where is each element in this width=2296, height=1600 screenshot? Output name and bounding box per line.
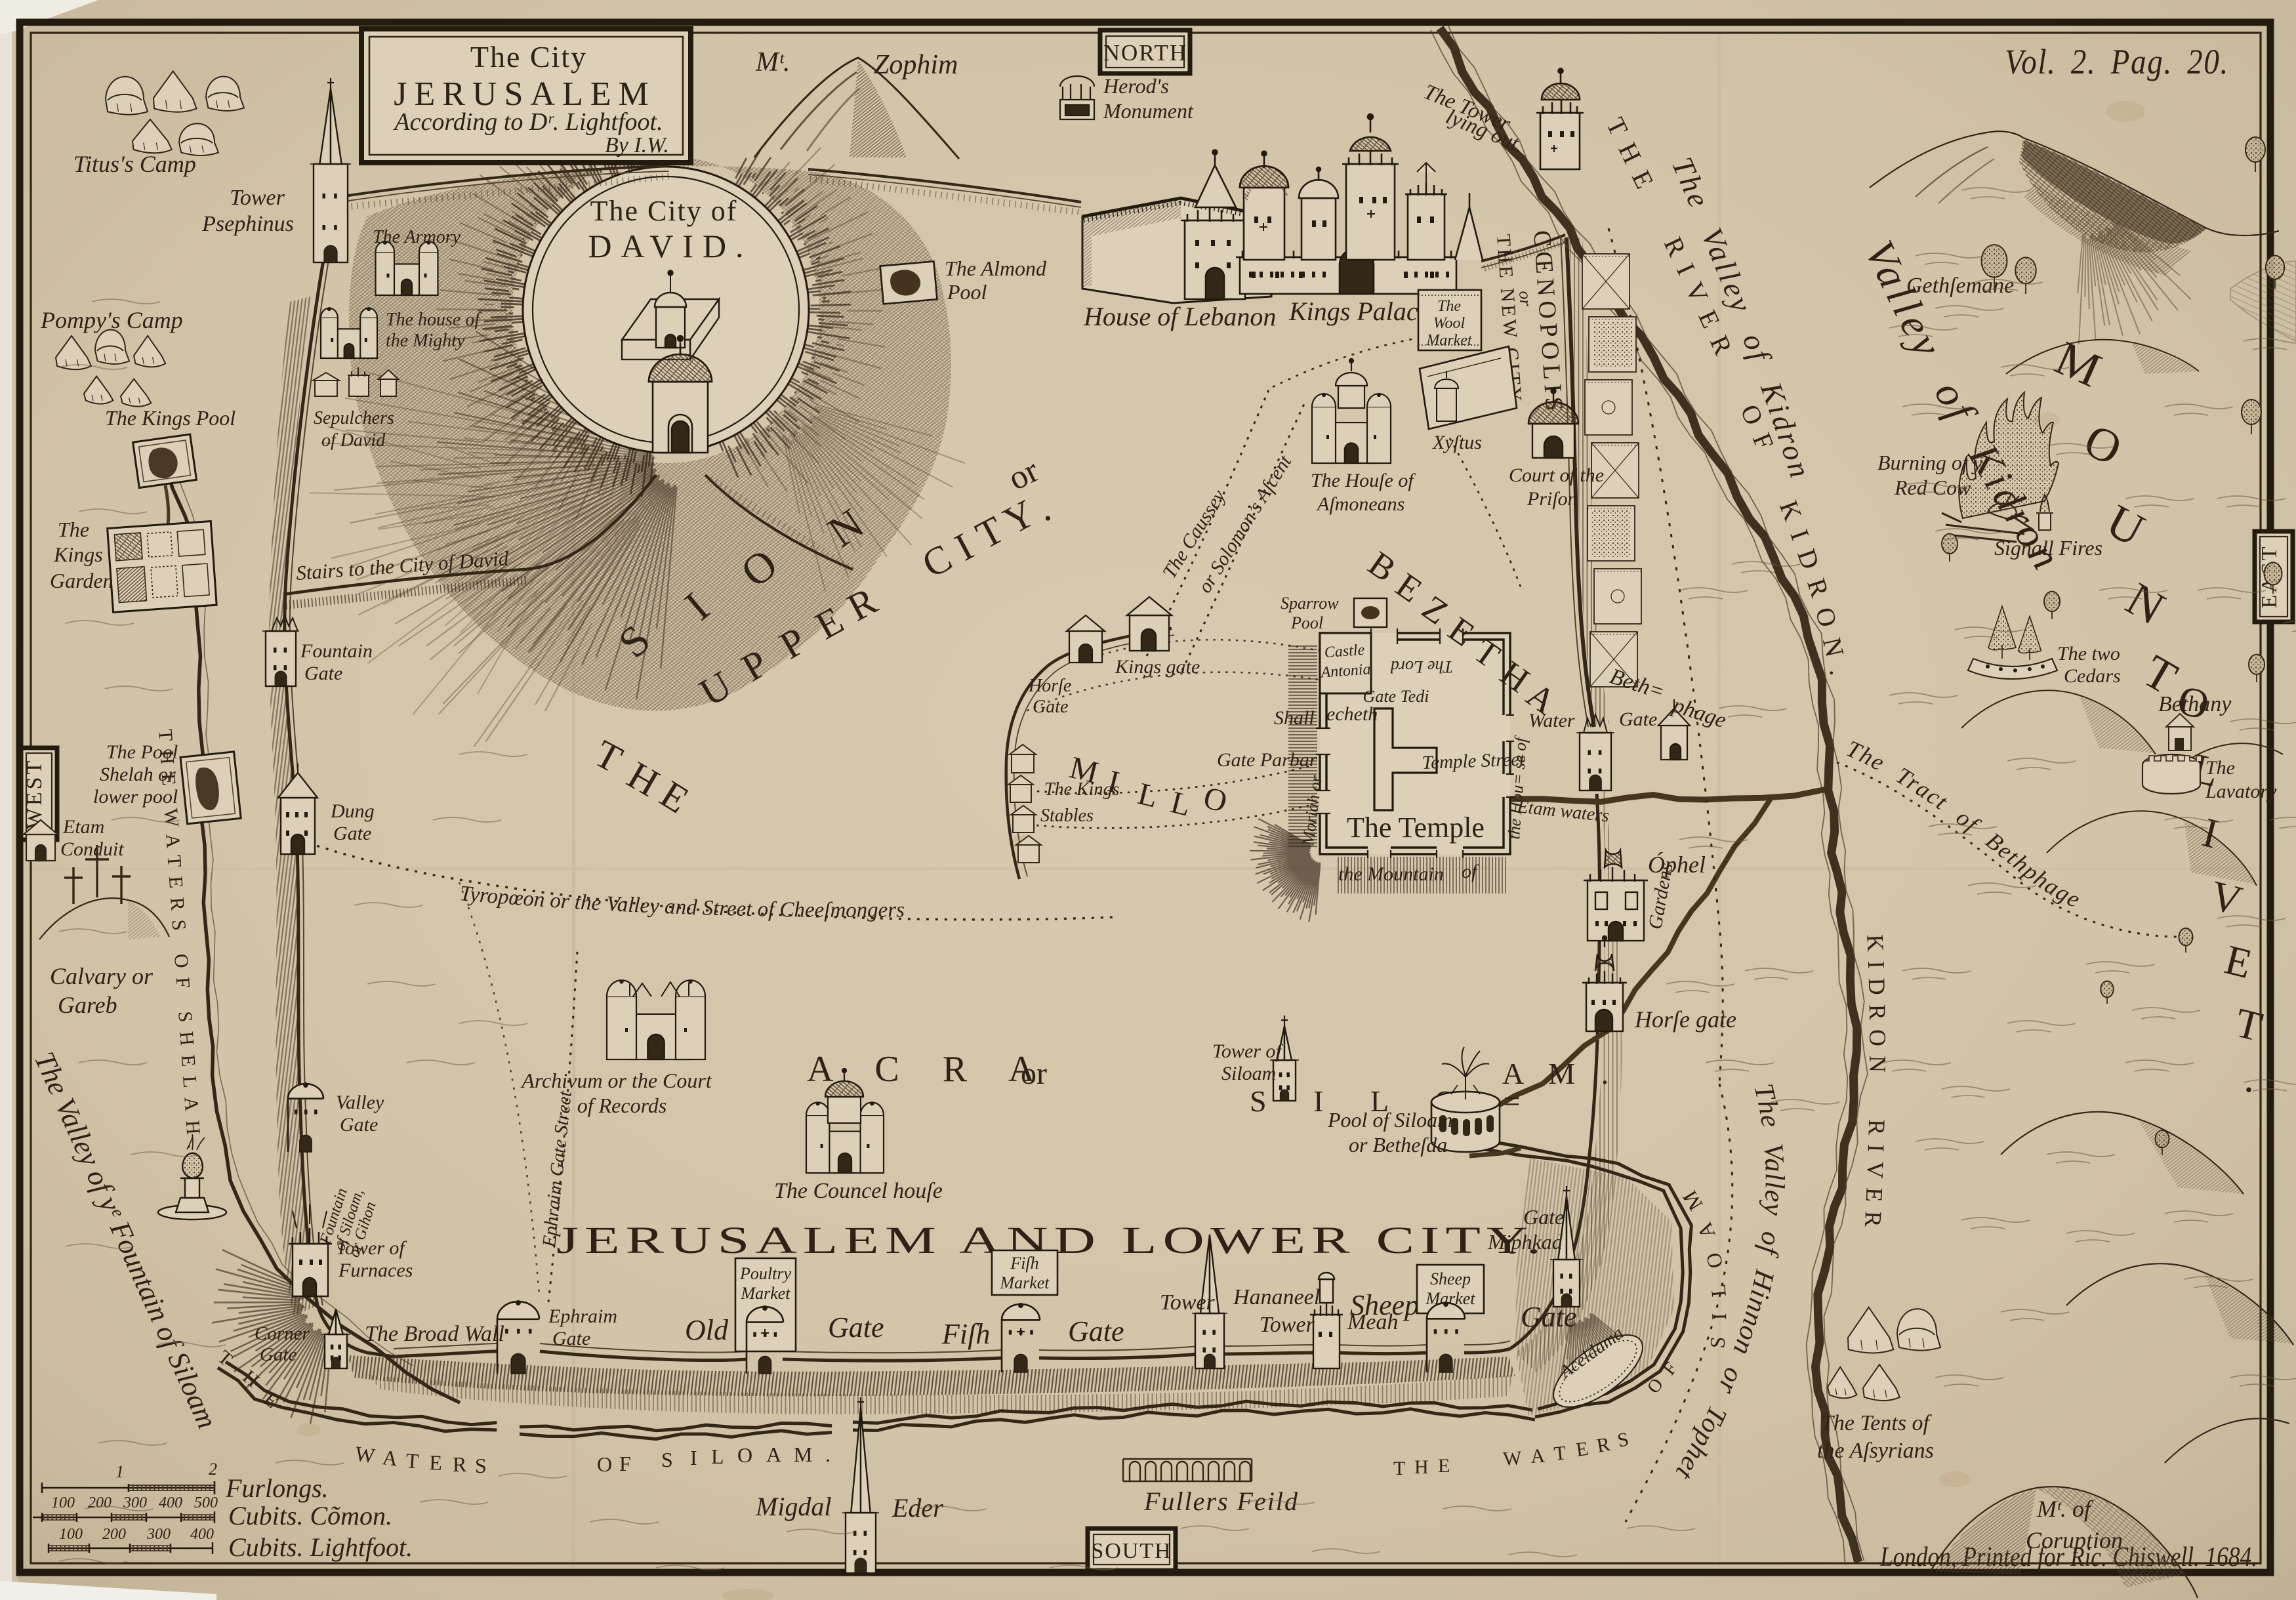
svg-text:Conduit: Conduit — [60, 838, 124, 860]
svg-text:Aſmoneans: Aſmoneans — [1316, 493, 1404, 515]
svg-text:Old: Old — [685, 1314, 729, 1346]
svg-text:the Aſsyrians: the Aſsyrians — [1817, 1439, 1934, 1463]
svg-text:Monument: Monument — [1103, 99, 1194, 123]
svg-text:Horſe gate: Horſe gate — [1634, 1006, 1736, 1033]
svg-text:Cedars: Cedars — [2064, 665, 2121, 687]
svg-text:Horſe: Horſe — [1028, 676, 1071, 696]
svg-text:L: L — [711, 1445, 724, 1468]
svg-text:of David: of David — [321, 430, 386, 451]
svg-text:Miphkad: Miphkad — [1487, 1230, 1563, 1254]
svg-text:Ephraim: Ephraim — [548, 1305, 617, 1327]
svg-text:Gate: Gate — [552, 1328, 590, 1349]
svg-text:Gate: Gate — [333, 823, 371, 844]
svg-text:Gate: Gate — [828, 1311, 884, 1344]
svg-text:Zophim: Zophim — [874, 50, 958, 80]
svg-text:T: T — [1393, 1458, 1405, 1479]
svg-text:House of Lebanon: House of Lebanon — [1083, 302, 1276, 331]
svg-text:400: 400 — [190, 1526, 214, 1543]
svg-text:100: 100 — [51, 1494, 75, 1511]
svg-text:The Lord: The Lord — [1390, 657, 1453, 676]
svg-text:T: T — [1553, 1442, 1567, 1465]
svg-text:300: 300 — [146, 1526, 171, 1543]
svg-text:The: The — [1437, 298, 1461, 315]
svg-text:A: A — [1530, 1445, 1546, 1467]
svg-text:Sheep: Sheep — [1350, 1289, 1419, 1321]
svg-text:500: 500 — [194, 1494, 218, 1511]
svg-text:The Houſe of: The Houſe of — [1311, 470, 1416, 491]
svg-text:Shall: Shall — [1274, 707, 1315, 729]
svg-text:Furnaces: Furnaces — [338, 1260, 413, 1281]
svg-text:Cubits. Lightfoot.: Cubits. Lightfoot. — [228, 1532, 413, 1562]
svg-text:Antonia: Antonia — [1319, 661, 1372, 681]
svg-text:Vol. 2. Pag. 20.: Vol. 2. Pag. 20. — [2005, 42, 2229, 81]
svg-text:Óphel: Óphel — [1648, 851, 1706, 878]
svg-text:W: W — [1502, 1447, 1523, 1470]
svg-text:The Councel houſe: The Councel houſe — [774, 1179, 943, 1203]
svg-text:Gareb: Gareb — [58, 992, 117, 1018]
svg-text:Hananeel: Hananeel — [1233, 1285, 1320, 1309]
svg-text:Pool: Pool — [1290, 613, 1323, 632]
svg-text:R: R — [453, 1452, 467, 1476]
svg-text:The: The — [58, 518, 89, 541]
svg-text:O: O — [597, 1452, 612, 1476]
svg-text:Pool of Siloam: Pool of Siloam — [1327, 1108, 1452, 1132]
svg-text:Psephinus: Psephinus — [201, 212, 294, 236]
svg-text:.: . — [825, 1443, 830, 1466]
svg-text:or Betheſda: or Betheſda — [1349, 1133, 1447, 1157]
svg-text:Cubits. Cõmon.: Cubits. Cõmon. — [228, 1501, 392, 1530]
svg-text:of Records: of Records — [577, 1094, 667, 1117]
svg-text:Gate: Gate — [1619, 708, 1657, 730]
svg-text:Tower: Tower — [230, 186, 285, 210]
svg-text:Kings Palace: Kings Palace — [1288, 297, 1429, 326]
svg-text:The Temple: The Temple — [1347, 811, 1485, 844]
svg-text:Court of the: Court of the — [1509, 464, 1604, 486]
svg-text:Sepulchers: Sepulchers — [314, 408, 394, 428]
svg-text:Bethany: Bethany — [2158, 692, 2232, 716]
svg-text:Fountain: Fountain — [300, 640, 373, 662]
svg-text:Wool: Wool — [1433, 315, 1466, 332]
svg-text:Tower: Tower — [1260, 1313, 1315, 1337]
svg-text:Mᵗ. of: Mᵗ. of — [2036, 1496, 2094, 1522]
svg-text:Temple Street: Temple Street — [1422, 749, 1525, 773]
svg-text:Coruption: Coruption — [2026, 1527, 2123, 1553]
svg-text:the Mighty: the Mighty — [386, 331, 465, 351]
svg-text:By I.W.: By I.W. — [605, 133, 669, 157]
svg-text:E: E — [429, 1450, 443, 1475]
svg-text:A: A — [766, 1443, 781, 1466]
svg-text:The Kings Pool: The Kings Pool — [105, 406, 236, 430]
svg-text:Pompy's Camp: Pompy's Camp — [40, 307, 183, 333]
svg-text:Xyſtus: Xyſtus — [1432, 432, 1482, 453]
svg-text:or: or — [1021, 1056, 1047, 1091]
svg-text:2: 2 — [209, 1460, 217, 1479]
svg-text:O: O — [737, 1443, 752, 1467]
svg-text:Pool: Pool — [947, 280, 987, 304]
svg-text:200: 200 — [102, 1526, 126, 1543]
svg-text:Fiſh: Fiſh — [1010, 1254, 1038, 1273]
svg-text:Sheep: Sheep — [1430, 1269, 1471, 1288]
svg-text:S: S — [661, 1448, 673, 1471]
svg-text:The house of: The house of — [386, 310, 482, 330]
svg-text:Gate: Gate — [1033, 697, 1068, 717]
svg-text:The Broad Wall: The Broad Wall — [365, 1322, 504, 1346]
svg-text:The: The — [2205, 757, 2235, 779]
svg-text:Fiſh: Fiſh — [941, 1318, 990, 1350]
svg-text:Gate: Gate — [1068, 1315, 1124, 1347]
svg-text:Archivum or the Court: Archivum or the Court — [520, 1069, 712, 1092]
svg-text:Poultry: Poultry — [739, 1264, 791, 1283]
svg-text:Etam: Etam — [62, 816, 104, 838]
svg-text:Siloam: Siloam — [1221, 1063, 1276, 1084]
svg-text:The Armory: The Armory — [373, 227, 461, 247]
svg-text:M: M — [794, 1443, 812, 1466]
svg-text:The City of: The City of — [590, 195, 738, 227]
svg-text:Furlongs.: Furlongs. — [225, 1473, 329, 1503]
svg-text:DAVID.: DAVID. — [588, 228, 752, 264]
svg-text:Gate: Gate — [1523, 1205, 1564, 1229]
svg-text:Market: Market — [740, 1284, 790, 1303]
svg-text:WEST: WEST — [22, 758, 47, 830]
svg-text:The Almond: The Almond — [945, 256, 1047, 280]
svg-text:NORTH: NORTH — [1103, 40, 1187, 66]
svg-text:Castle: Castle — [1324, 642, 1365, 661]
svg-text:Market: Market — [999, 1273, 1050, 1292]
svg-text:W: W — [354, 1441, 377, 1467]
svg-text:According to Dʳ. Lightfoot.: According to Dʳ. Lightfoot. — [392, 108, 663, 136]
svg-text:E: E — [1438, 1455, 1450, 1477]
svg-text:Kings: Kings — [53, 543, 103, 566]
svg-text:Stables: Stables — [1040, 806, 1094, 826]
svg-text:F: F — [619, 1452, 631, 1475]
svg-text:400: 400 — [159, 1494, 182, 1511]
svg-text:Garden: Garden — [50, 569, 113, 592]
svg-text:100: 100 — [59, 1526, 83, 1543]
svg-text:Gate: Gate — [260, 1344, 297, 1365]
svg-text:Water: Water — [1528, 710, 1575, 731]
svg-text:Calvary or: Calvary or — [50, 963, 154, 989]
svg-text:A M .: A M . — [1502, 1057, 1618, 1090]
svg-text:The Kings: The Kings — [1044, 779, 1119, 800]
svg-text:Corner: Corner — [255, 1323, 310, 1344]
svg-text:Migdal: Migdal — [755, 1492, 832, 1521]
svg-text:1: 1 — [115, 1462, 124, 1481]
svg-text:Kings gate: Kings gate — [1115, 656, 1200, 678]
svg-text:of: of — [1462, 861, 1479, 882]
svg-text:200: 200 — [88, 1494, 112, 1511]
svg-text:A C R A: A C R A — [807, 1049, 1052, 1090]
svg-text:Tower: Tower — [1160, 1290, 1216, 1315]
svg-text:Lavatory: Lavatory — [2205, 781, 2277, 802]
svg-text:SOUTH: SOUTH — [1091, 1539, 1172, 1563]
svg-text:The Tents of: The Tents of — [1821, 1411, 1933, 1435]
svg-text:H: H — [1414, 1456, 1429, 1478]
svg-text:Tower of: Tower of — [1212, 1040, 1283, 1062]
svg-text:S: S — [475, 1454, 487, 1477]
svg-text:The two: The two — [2057, 643, 2120, 665]
svg-text:Gate Parbar: Gate Parbar — [1217, 749, 1317, 771]
svg-text:Sparrow: Sparrow — [1281, 594, 1339, 613]
svg-text:The City: The City — [470, 40, 587, 73]
svg-text:the Mountain: the Mountain — [1338, 863, 1444, 885]
svg-text:Gate: Gate — [304, 663, 342, 684]
svg-text:I: I — [690, 1446, 697, 1469]
svg-text:Valley: Valley — [336, 1092, 384, 1113]
svg-text:JERUSALEM: JERUSALEM — [394, 75, 655, 113]
svg-text:Burning of ŷ: Burning of ŷ — [1877, 451, 1983, 474]
svg-text:A: A — [381, 1445, 399, 1470]
svg-text:echeth: echeth — [1326, 703, 1378, 725]
svg-text:T: T — [405, 1448, 420, 1473]
svg-text:Signall Fires: Signall Fires — [1994, 536, 2102, 560]
svg-text:Priſon: Priſon — [1527, 488, 1578, 510]
svg-text:Herod's: Herod's — [1103, 74, 1169, 98]
svg-text:Mᵗ.: Mᵗ. — [755, 47, 790, 77]
svg-text:Gate: Gate — [340, 1114, 378, 1136]
svg-text:Dung: Dung — [330, 800, 375, 822]
svg-text:Titus's Camp: Titus's Camp — [73, 151, 196, 177]
svg-text:Fullers Feild: Fullers Feild — [1143, 1487, 1299, 1516]
svg-text:Tower of: Tower of — [336, 1237, 407, 1259]
svg-text:Gethſemane: Gethſemane — [1906, 274, 2014, 298]
svg-text:Market: Market — [1425, 332, 1473, 349]
svg-text:.: . — [2244, 1054, 2254, 1101]
svg-text:Eder: Eder — [892, 1493, 943, 1523]
